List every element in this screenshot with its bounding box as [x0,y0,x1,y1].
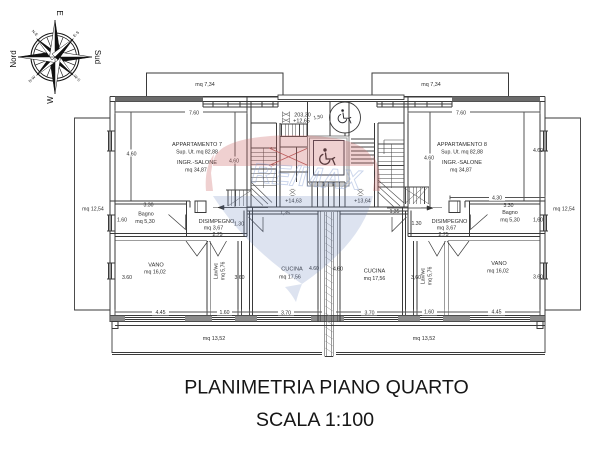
svg-text:2.75: 2.75 [438,232,448,238]
svg-text:E: E [55,10,64,15]
svg-text:7.60: 7.60 [189,111,199,117]
svg-text:3.70: 3.70 [281,310,291,316]
svg-text:mq 3,67: mq 3,67 [204,226,223,232]
svg-text:Lav/wc: Lav/wc [421,268,427,285]
svg-text:Bagno: Bagno [138,212,154,218]
svg-text:PLANIMETRIA PIANO QUARTO: PLANIMETRIA PIANO QUARTO [184,377,469,399]
svg-text:CUCINA: CUCINA [364,269,386,275]
svg-text:SCALA 1:100: SCALA 1:100 [256,409,374,431]
svg-text:mq 13,52: mq 13,52 [413,336,435,342]
svg-text:mq 17,56: mq 17,56 [364,276,386,282]
svg-text:1,60: 1,60 [533,218,543,224]
svg-text:mq 16,02: mq 16,02 [144,270,166,276]
svg-text:DISIMPEGNO: DISIMPEGNO [432,219,468,225]
svg-text:VANO: VANO [491,261,507,267]
svg-text:mq 12,54: mq 12,54 [82,207,104,213]
svg-text:7.60: 7.60 [456,111,466,117]
svg-text:4.45: 4.45 [491,310,501,316]
svg-text:1.60: 1.60 [424,310,434,316]
svg-text:3.70: 3.70 [364,310,374,316]
svg-text:3.60: 3.60 [533,275,543,281]
svg-text:INGR.-SALONE: INGR.-SALONE [442,160,482,166]
svg-text:3.30: 3.30 [143,203,153,209]
svg-text:3,60: 3,60 [234,275,244,281]
svg-text:1.60: 1.60 [117,218,127,224]
svg-text:mq 5,30: mq 5,30 [500,217,519,223]
svg-text:DISIMPEGNO: DISIMPEGNO [199,219,235,225]
svg-text:3.60: 3.60 [122,275,132,281]
svg-text:Sup. Ut. mq 82,88: Sup. Ut. mq 82,88 [176,150,218,156]
svg-text:Sud: Sud [93,50,102,64]
svg-text:mq 34,87: mq 34,87 [185,168,207,174]
svg-text:mq 7,34: mq 7,34 [195,82,214,88]
svg-text:1.60: 1.60 [219,310,229,316]
svg-text:3,60: 3,60 [411,275,421,281]
svg-text:4.60: 4.60 [126,152,136,158]
svg-text:mq 7,34: mq 7,34 [421,82,440,88]
svg-text:mq 34,87: mq 34,87 [450,168,472,174]
svg-text:4.60: 4.60 [333,267,343,273]
svg-text:mq 5,76: mq 5,76 [221,262,227,281]
svg-text:APPARTAMENTO 8: APPARTAMENTO 8 [437,142,487,148]
svg-text:mq 12,54: mq 12,54 [553,207,575,213]
svg-text:APPARTAMENTO 7: APPARTAMENTO 7 [172,142,222,148]
svg-text:4.30: 4.30 [492,196,502,202]
svg-text:1.30: 1.30 [411,221,421,227]
svg-text:4.45: 4.45 [155,310,165,316]
svg-text:Lav/wc: Lav/wc [214,263,220,280]
svg-text:mq 5,30: mq 5,30 [135,219,154,225]
svg-text:Sup. Ut. mq 82,88: Sup. Ut. mq 82,88 [441,150,483,156]
svg-text:4.60: 4.60 [533,148,543,154]
svg-text:mq 13,52: mq 13,52 [203,336,225,342]
svg-text:mq 16,02: mq 16,02 [487,268,509,274]
svg-text:4.60: 4.60 [424,156,434,162]
svg-text:mq 5,76: mq 5,76 [428,267,434,286]
svg-text:VANO: VANO [148,263,164,269]
svg-text:W: W [46,96,55,104]
svg-text:Nord: Nord [9,50,18,67]
svg-text:mq 3,67: mq 3,67 [437,225,456,231]
svg-text:Bagno: Bagno [502,210,518,216]
svg-text:3.30: 3.30 [503,203,513,209]
